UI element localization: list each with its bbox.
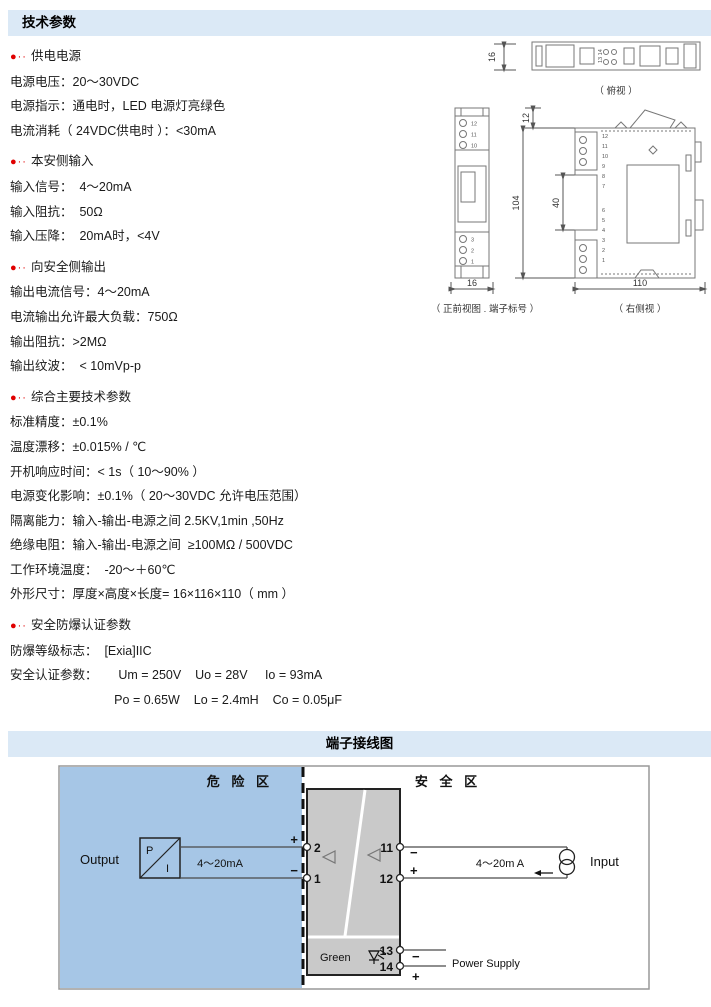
spec-line: 工作环境温度： -20～＋60℃ [10,558,450,583]
spec-line: 输入阻抗： 50Ω [10,200,450,225]
terminal-dot [397,844,404,851]
top-view-module: 13 14 [532,42,700,70]
front-view-caption: （ 正前视图 . 端子标号 ） [431,303,539,315]
tech-params-title: 技术参数 [22,15,76,30]
power-supply-label: Power Supply [452,958,520,970]
spec-section: ●··供电电源电源电压：20～30VDC电源指示：通电时，LED 电源灯亮绿色电… [10,44,450,143]
pi-converter-i: I [166,863,169,875]
spec-line: 电源变化影响：±0.1%（ 20～30VDC 允许电压范围） [10,484,450,509]
spec-line: 安全认证参数： Um = 250V Uo = 28V Io = 93mA [10,663,450,688]
side-view: 12 104 40 12 11 10 9 8 7 6 [511,108,705,315]
safe-area-label: 安 全 区 [415,774,481,789]
spec-line: 输入信号： 4～20mA [10,175,450,200]
spec-section-title: 供电电源 [31,49,81,63]
wiring-title: 端子接线图 [326,736,394,751]
side-view-dim-top: 12 [521,113,531,123]
spec-section-title: 本安侧输入 [31,154,94,168]
spec-section-heading: ●··安全防爆认证参数 [10,613,450,639]
top-view-dimension: 16 [487,44,516,70]
side-terminal-num: 3 [602,238,605,244]
spec-line: 标准精度：±0.1% [10,410,450,435]
terminal-dot [304,875,311,882]
side-view-dim-height: 104 [511,195,521,210]
output-minus-sign: − [290,863,298,878]
spec-section-heading: ●··综合主要技术参数 [10,385,450,411]
power-minus-sign: − [412,949,420,964]
datasheet-page: 技术参数 ●··供电电源电源电压：20～30VDC电源指示：通电时，LED 电源… [0,0,711,1007]
side-terminal-num: 2 [602,248,605,254]
side-view-dim-mid: 40 [551,198,561,208]
pi-converter-p: P [146,845,153,857]
terminal-num-12: 12 [380,872,394,886]
spec-line: 电流输出允许最大负载：750Ω [10,305,450,330]
terminal-dot [304,844,311,851]
spec-line: 电流消耗（ 24VDC供电时 ）：<30mA [10,119,450,144]
side-terminal-num: 4 [602,228,605,234]
side-terminal-num: 1 [602,258,605,264]
input-label: Input [590,854,619,869]
side-terminal-num: 9 [602,164,605,170]
spec-section-title: 向安全侧输出 [31,260,106,274]
spec-section-heading: ●··向安全侧输出 [10,255,450,281]
spec-line: Po = 0.65W Lo = 2.4mH Co = 0.05μF [10,688,450,713]
front-terminal-num: 1 [471,260,474,266]
side-terminal-num: 10 [602,154,608,160]
spec-section-title: 综合主要技术参数 [31,390,131,404]
front-terminal-num: 3 [471,238,474,244]
terminal-num-2: 2 [314,841,321,855]
bullet-icon: ●·· [10,262,27,274]
front-terminal-num: 10 [471,144,477,150]
terminal-num-1: 1 [314,872,321,886]
side-view-dim-length: 110 [633,278,647,288]
front-side-views-drawing: 12 11 10 3 2 1 16 （ 正前视图 . 端子标号 ） 12 [425,100,711,320]
side-terminal-num: 11 [602,144,608,150]
top-view-drawing: 16 13 14 （ 俯视 ） [480,36,711,106]
spec-section: ●··安全防爆认证参数防爆等级标志： [Exia]IIC安全认证参数： Um =… [10,613,450,712]
spec-line: 防爆等级标志： [Exia]IIC [10,639,450,664]
spec-section-heading: ●··本安侧输入 [10,149,450,175]
side-terminal-num: 5 [602,218,605,224]
spec-line: 外形尺寸：厚度×高度×长度= 16×116×110（ mm ） [10,582,450,607]
input-signal-label: 4～20m A [476,858,525,870]
terminal-dot [397,947,404,954]
front-terminal-num: 11 [471,133,477,139]
front-terminal-num: 2 [471,249,474,255]
spec-section-heading: ●··供电电源 [10,44,450,70]
output-signal-label: 4～20mA [197,858,244,870]
spec-section: ●··综合主要技术参数标准精度：±0.1%温度漂移：±0.015% / ℃开机响… [10,385,450,607]
spec-line: 绝缘电阻：输入-输出-电源之间 ≥100MΩ / 500VDC [10,533,450,558]
isolator-module: 2 1 11 12 13 14 Green [307,789,400,975]
terminal-num-14: 14 [380,960,394,974]
spec-section: ●··向安全侧输出输出电流信号：4～20mA电流输出允许最大负载：750Ω输出阻… [10,255,450,379]
hazard-area-label: 危 险 区 [207,774,273,789]
top-view-dim-label: 16 [487,52,497,62]
spec-line: 隔离能力：输入-输出-电源之间 2.5KV,1min ,50Hz [10,509,450,534]
front-terminal-num: 12 [471,122,477,128]
bullet-icon: ●·· [10,620,27,632]
top-view-caption: （ 俯视 ） [594,85,637,97]
green-led-label: Green [320,952,351,964]
spec-line: 温度漂移：±0.015% / ℃ [10,435,450,460]
top-view-terminal-numbers: 13 14 [598,49,604,63]
terminal-dot [397,963,404,970]
side-view-caption: （ 右侧视 ） [614,303,667,315]
spec-line: 输出纹波： < 10mVp-p [10,354,450,379]
power-plus-sign: + [412,969,420,984]
side-terminal-num: 7 [602,184,605,190]
input-plus-sign: + [410,863,418,878]
output-label: Output [80,852,119,867]
wiring-diagram: 危 险 区 安 全 区 2 1 11 12 13 14 Green [58,765,650,990]
spec-section-title: 安全防爆认证参数 [31,618,131,632]
bullet-icon: ●·· [10,51,27,63]
terminal-num-11: 11 [380,841,393,855]
terminal-dot [397,875,404,882]
output-plus-sign: + [290,832,298,847]
side-terminal-num: 6 [602,208,605,214]
spec-line: 输出电流信号：4～20mA [10,280,450,305]
spec-line: 电源指示：通电时，LED 电源灯亮绿色 [10,94,450,119]
front-view-dim-label: 16 [467,278,477,288]
side-terminal-num: 8 [602,174,605,180]
tech-params-header: 技术参数 [8,10,711,36]
spec-section: ●··本安侧输入输入信号： 4～20mA输入阻抗： 50Ω输入压降： 20mA时… [10,149,450,248]
spec-sections: ●··供电电源电源电压：20～30VDC电源指示：通电时，LED 电源灯亮绿色电… [10,44,450,712]
side-terminal-num: 12 [602,134,608,140]
wiring-header: 端子接线图 [8,731,711,757]
spec-line: 输入压降： 20mA时，<4V [10,224,450,249]
bullet-icon: ●·· [10,156,27,168]
spec-line: 输出阻抗：>2MΩ [10,330,450,355]
spec-line: 电源电压：20～30VDC [10,70,450,95]
spec-line: 开机响应时间：< 1s（ 10～90% ） [10,460,450,485]
bullet-icon: ●·· [10,392,27,404]
